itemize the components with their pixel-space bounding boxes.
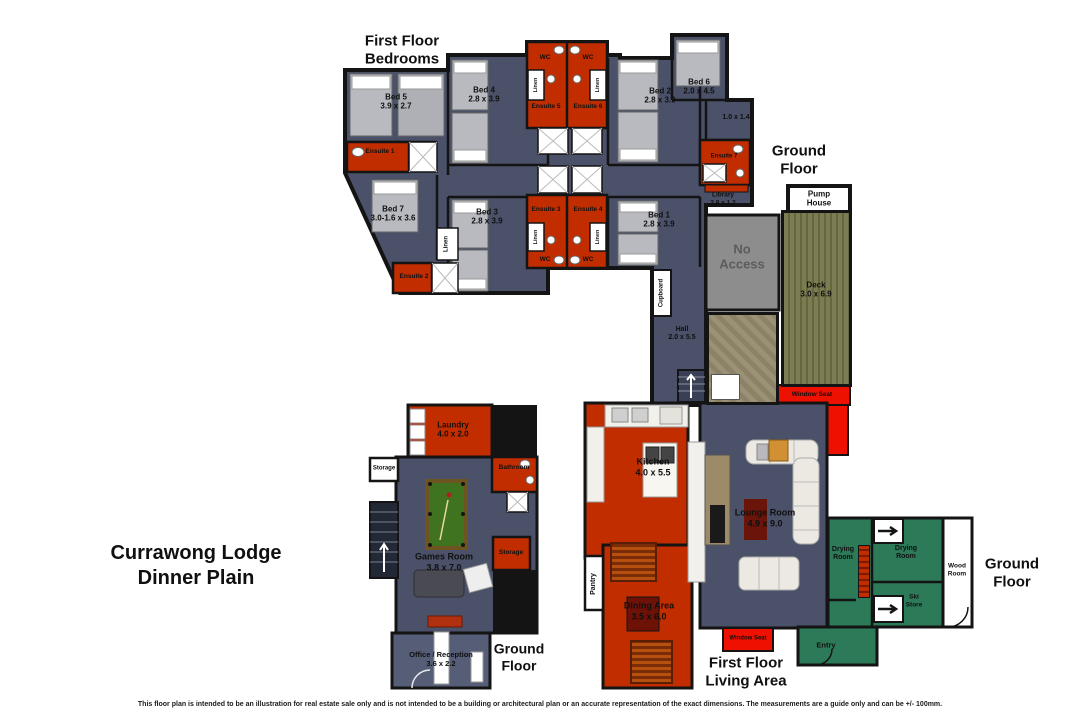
label-bed1: Bed 12.8 x 3.9: [643, 211, 674, 230]
dining-rug: [610, 542, 657, 582]
washing-machine-icon: [410, 409, 425, 455]
label-office: Office / Reception3.6 x 2.2: [409, 651, 473, 669]
label-wc: WC: [583, 256, 594, 264]
stone-path: [706, 312, 779, 405]
label-wc: WC: [583, 54, 594, 62]
label-storage: Storage: [499, 549, 523, 557]
shower-icon: [572, 166, 602, 193]
heading-ground-floor-left: GroundFloor: [494, 640, 545, 673]
skylight-icon: [711, 374, 740, 400]
toilet-icon: [570, 256, 580, 264]
toilet-icon: [570, 46, 580, 54]
sink-icon: [526, 476, 534, 484]
stairs-icon: [874, 596, 903, 622]
label-ensuite2: Ensuite 2: [400, 273, 429, 281]
shower-icon: [538, 128, 568, 154]
ensuite-1-floor: [347, 142, 409, 172]
heading-ground-floor-right: GroundFloor: [985, 555, 1039, 590]
entry-floor: [798, 627, 877, 665]
label-linen: Linen: [595, 230, 601, 245]
toilet-icon: [554, 46, 564, 54]
label-cupboard: Cupboard: [658, 279, 665, 307]
label-kitchen: Kitchen4.0 x 5.5: [635, 456, 670, 477]
label-pantry: Pantry: [590, 573, 598, 595]
bathroom-floor: [492, 457, 537, 492]
label-window-seat: Window Seat: [792, 391, 832, 399]
label-bathroom: Bathroom: [499, 464, 530, 472]
roof-void: [492, 405, 537, 457]
bed-icon: [618, 112, 658, 162]
label-games-room: Games Room3.8 x 7.0: [415, 551, 473, 572]
label-ensuite6: Ensuite 6: [574, 103, 603, 111]
roof-void: [493, 570, 537, 633]
drying-rack-icon: [858, 545, 870, 598]
stairs-icon: [678, 370, 705, 402]
label-ensuite4: Ensuite 4: [574, 206, 603, 214]
shower-icon: [432, 263, 458, 293]
shower-icon: [409, 142, 437, 172]
label-ensuite3: Ensuite 3: [532, 206, 561, 214]
pool-table-icon: [427, 481, 466, 548]
bed-icon: [452, 113, 488, 163]
toilet-icon: [733, 145, 743, 153]
hearth-icon: [428, 616, 462, 627]
label-bed2: Bed 22.8 x 3.9: [644, 87, 675, 106]
sink-icon: [736, 169, 744, 177]
sink-icon: [573, 75, 581, 83]
label-pump-house: PumpHouse: [807, 190, 831, 209]
floorplan-canvas: First FloorBedrooms GroundFloor GroundFl…: [0, 0, 1080, 720]
label-bed4: Bed 42.8 x 3.9: [468, 86, 499, 105]
toilet-icon: [554, 256, 564, 264]
couch-icon: [414, 570, 464, 597]
shower-icon: [572, 128, 602, 154]
stairs-icon: [370, 502, 398, 578]
label-linen: Linen: [595, 78, 601, 93]
label-ensuite1: Ensuite 1: [366, 148, 395, 156]
label-window-seat: Window Seat: [729, 635, 766, 642]
fireplace-icon: [705, 455, 730, 545]
label-linen: Linen: [533, 230, 539, 245]
label-library: Library2.8 x 1.2: [710, 191, 735, 206]
toilet-icon: [352, 148, 364, 157]
heading-ground-floor-top: GroundFloor: [772, 142, 826, 177]
sink-icon: [547, 75, 555, 83]
stairs-icon: [874, 519, 903, 543]
label-bed5: Bed 53.9 x 2.7: [380, 93, 411, 112]
label-wc: WC: [540, 54, 551, 62]
shower-icon: [703, 164, 726, 182]
label-lounge: Lounge Room4.9 x 9.0: [735, 507, 796, 528]
label-ensuite5: Ensuite 5: [532, 103, 561, 111]
label-no-access: NoAccess: [719, 242, 765, 273]
disclaimer-text: This floor plan is intended to be an ill…: [0, 701, 1080, 708]
label-wood-room: WoodRoom: [948, 562, 966, 577]
page-title: Currawong LodgeDinner Plain: [110, 541, 281, 591]
heading-first-floor-living: First FloorLiving Area: [705, 654, 786, 689]
label-linen: Linen: [533, 78, 539, 93]
label-bed6: Bed 62.0 x 4.5: [683, 78, 714, 97]
label-deck: Deck3.0 x 6.9: [800, 281, 831, 300]
label-bed7: Bed 73.0-1.6 x 3.6: [371, 205, 416, 224]
sink-icon: [547, 236, 555, 244]
label-ensuite7: Ensuite 7: [711, 153, 738, 160]
label-hall: Hall2.0 x 5.5: [668, 326, 695, 343]
label-drying-room: DryingRoom: [832, 546, 854, 563]
bed-icon: [618, 234, 658, 265]
label-linen: Linen: [443, 236, 450, 252]
shower-icon: [507, 492, 528, 512]
label-wc: WC: [540, 256, 551, 264]
heading-first-floor-bedrooms: First FloorBedrooms: [365, 32, 439, 67]
sofa-icon: [739, 557, 799, 590]
label-entry: Entry: [816, 642, 835, 651]
label-ski-store: SkiStore: [906, 593, 923, 608]
sink-icon: [573, 236, 581, 244]
label-balcony-dims: 1.0 x 1.4: [722, 114, 749, 122]
label-drying-room: DryingRoom: [895, 545, 917, 562]
label-dining: Dining Area3.5 x 6.0: [624, 600, 674, 621]
kitchen-bench: [688, 442, 705, 582]
shower-icon: [538, 166, 568, 193]
label-storage: Storage: [373, 465, 395, 472]
label-bed3: Bed 32.8 x 3.9: [471, 208, 502, 227]
dining-rug: [630, 640, 673, 684]
label-laundry: Laundry4.0 x 2.0: [437, 421, 469, 440]
